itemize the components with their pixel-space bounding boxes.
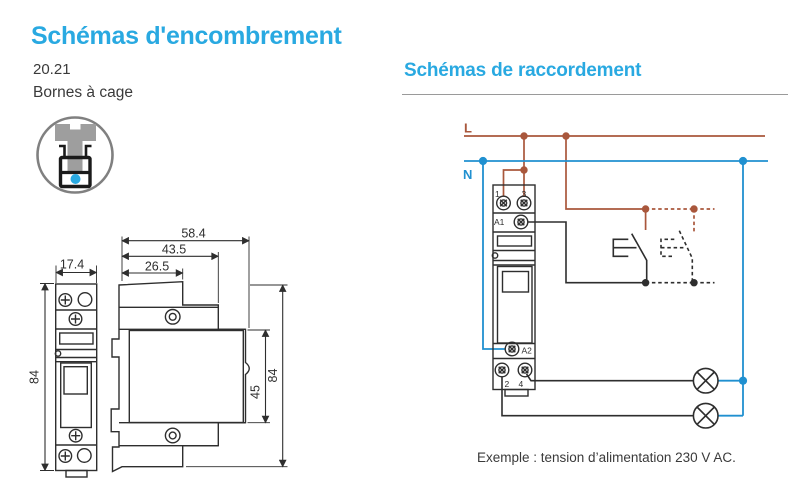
lamp-icon xyxy=(693,403,718,428)
load-junction-dots xyxy=(642,279,698,286)
dim-side-depth: 58.4 xyxy=(181,227,205,241)
switch-lever xyxy=(503,272,529,293)
front-view: 17.4 84 xyxy=(28,258,97,478)
dim-front-width: 17.4 xyxy=(60,258,84,272)
phase-label: L xyxy=(464,121,472,136)
wiring-caption: Exemple : tension d’alimentation 230 V A… xyxy=(477,450,736,465)
catalog-page: Schémas d'encombrement 20.21 Bornes à ca… xyxy=(0,0,800,500)
din-foot xyxy=(505,390,528,397)
technical-drawings: 17.4 84 58.4 43.5 26.5 84 45 xyxy=(0,0,800,500)
dim-side-short: 26.5 xyxy=(145,260,169,274)
terminal-label-a2: A2 xyxy=(522,346,533,356)
side-view: 58.4 43.5 26.5 84 45 xyxy=(111,227,287,472)
din-foot xyxy=(66,471,87,478)
dim-side-mid: 43.5 xyxy=(162,243,186,257)
label-window xyxy=(498,236,532,246)
dim-side-height: 84 xyxy=(266,369,280,383)
phase-wires xyxy=(464,136,765,233)
label-window xyxy=(60,333,93,344)
neutral-label: N xyxy=(463,167,472,182)
switch-symbol-solid xyxy=(613,234,646,283)
terminal-label-4: 4 xyxy=(519,379,524,389)
lamp-icon xyxy=(693,368,718,393)
phase-junction-dots xyxy=(520,132,697,212)
switch-lever xyxy=(64,367,87,394)
terminal-label-2: 2 xyxy=(505,379,510,389)
terminal-label-3: 3 xyxy=(522,189,527,199)
wiring-diagram: L N xyxy=(463,121,768,429)
terminal-label-a1: A1 xyxy=(494,217,505,227)
contactor-symbol: 1 3 A1 A2 2 4 xyxy=(492,185,535,396)
switch-symbol-dashed xyxy=(661,231,692,283)
dim-side-body: 45 xyxy=(249,385,263,399)
terminal-label-1: 1 xyxy=(495,189,500,199)
dim-front-height: 84 xyxy=(28,370,42,384)
